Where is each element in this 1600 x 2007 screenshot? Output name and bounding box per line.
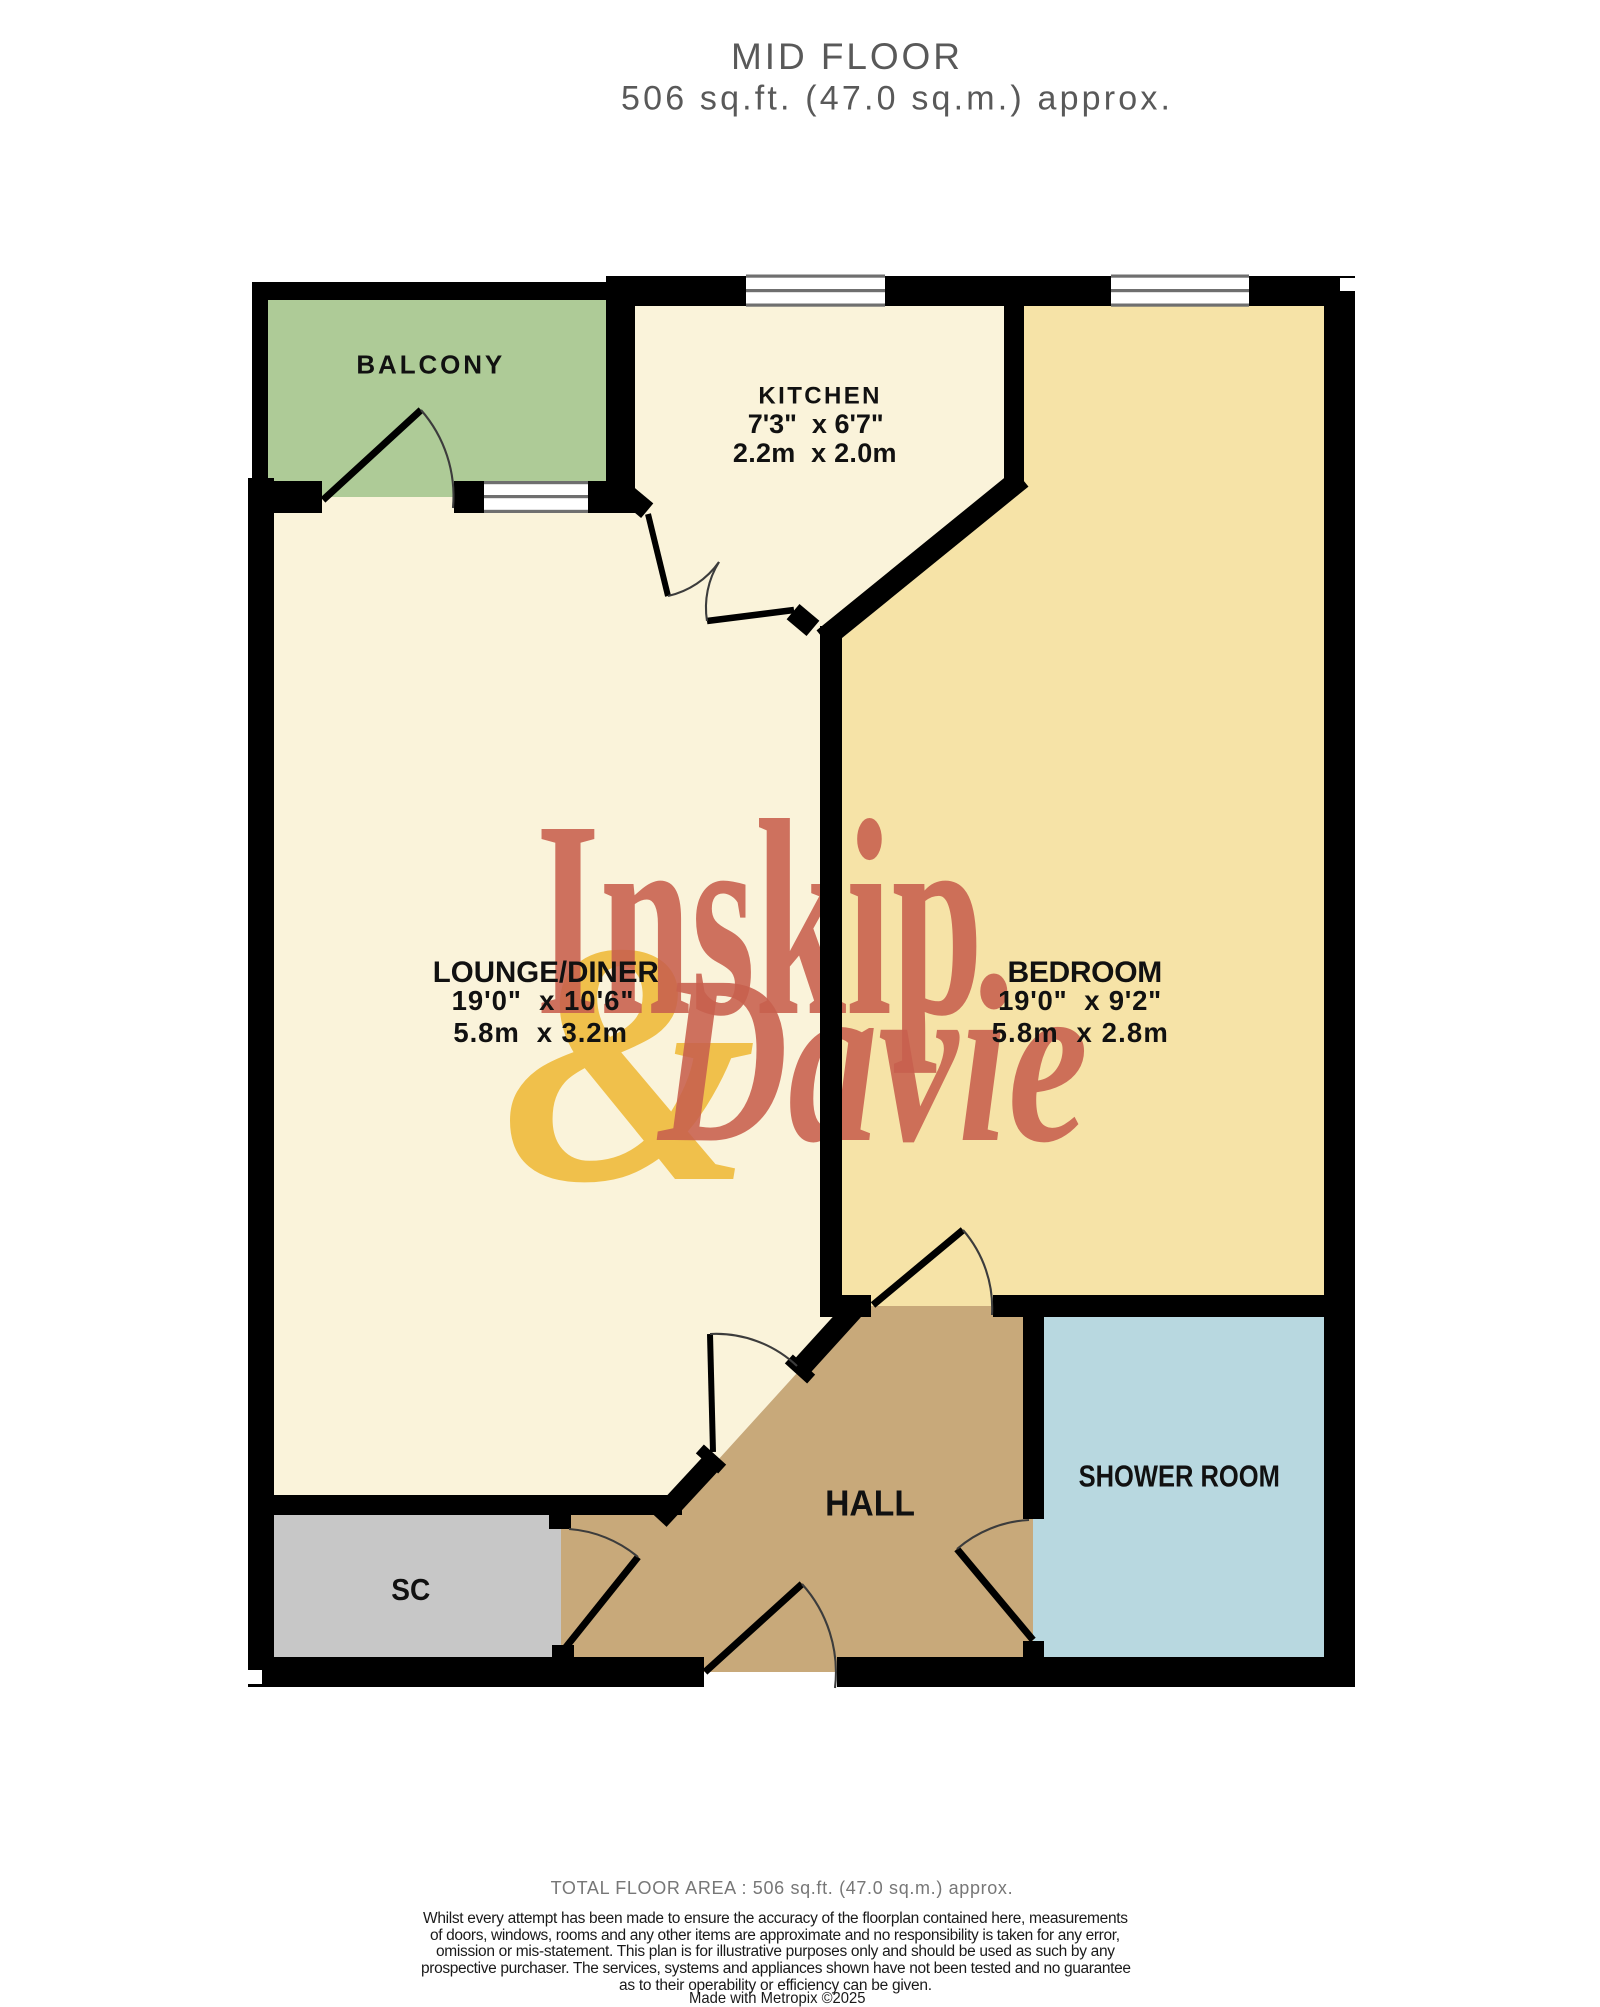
svg-text:LOUNGE/DINER: LOUNGE/DINER (433, 956, 659, 989)
svg-text:MID FLOOR: MID FLOOR (731, 36, 960, 77)
svg-text:SC: SC (391, 1572, 430, 1607)
svg-text:prospective purchaser. The ser: prospective purchaser. The services, sys… (421, 1960, 1131, 1977)
svg-text:SHOWER ROOM: SHOWER ROOM (1079, 1459, 1280, 1494)
svg-text:19'0" x 10'6": 19'0" x 10'6" (452, 985, 634, 1016)
svg-text:2.2m x 2.0m: 2.2m x 2.0m (733, 438, 897, 468)
svg-text:Made with Metropix ©2025: Made with Metropix ©2025 (689, 1990, 865, 2007)
svg-text:5.8m x 2.8m: 5.8m x 2.8m (992, 1017, 1168, 1048)
svg-text:506 sq.ft. (47.0 sq.m.) approx: 506 sq.ft. (47.0 sq.m.) approx. (621, 80, 1170, 118)
svg-text:of doors, windows, rooms and a: of doors, windows, rooms and any other i… (430, 1927, 1120, 1944)
svg-text:5.8m x 3.2m: 5.8m x 3.2m (453, 1017, 627, 1048)
svg-text:TOTAL FLOOR AREA : 506 sq.ft.: TOTAL FLOOR AREA : 506 sq.ft. (47.0 sq.m… (551, 1878, 1013, 1898)
svg-text:BALCONY: BALCONY (356, 350, 502, 380)
svg-text:BEDROOM: BEDROOM (1008, 956, 1163, 989)
svg-text:19'0" x 9'2": 19'0" x 9'2" (998, 985, 1161, 1016)
svg-text:omission or mis-statement. Thi: omission or mis-statement. This plan is … (436, 1943, 1115, 1960)
svg-text:Whilst every attempt has been: Whilst every attempt has been made to en… (423, 1910, 1128, 1927)
svg-text:7'3" x 6'7": 7'3" x 6'7" (748, 409, 884, 439)
svg-text:HALL: HALL (825, 1483, 915, 1524)
